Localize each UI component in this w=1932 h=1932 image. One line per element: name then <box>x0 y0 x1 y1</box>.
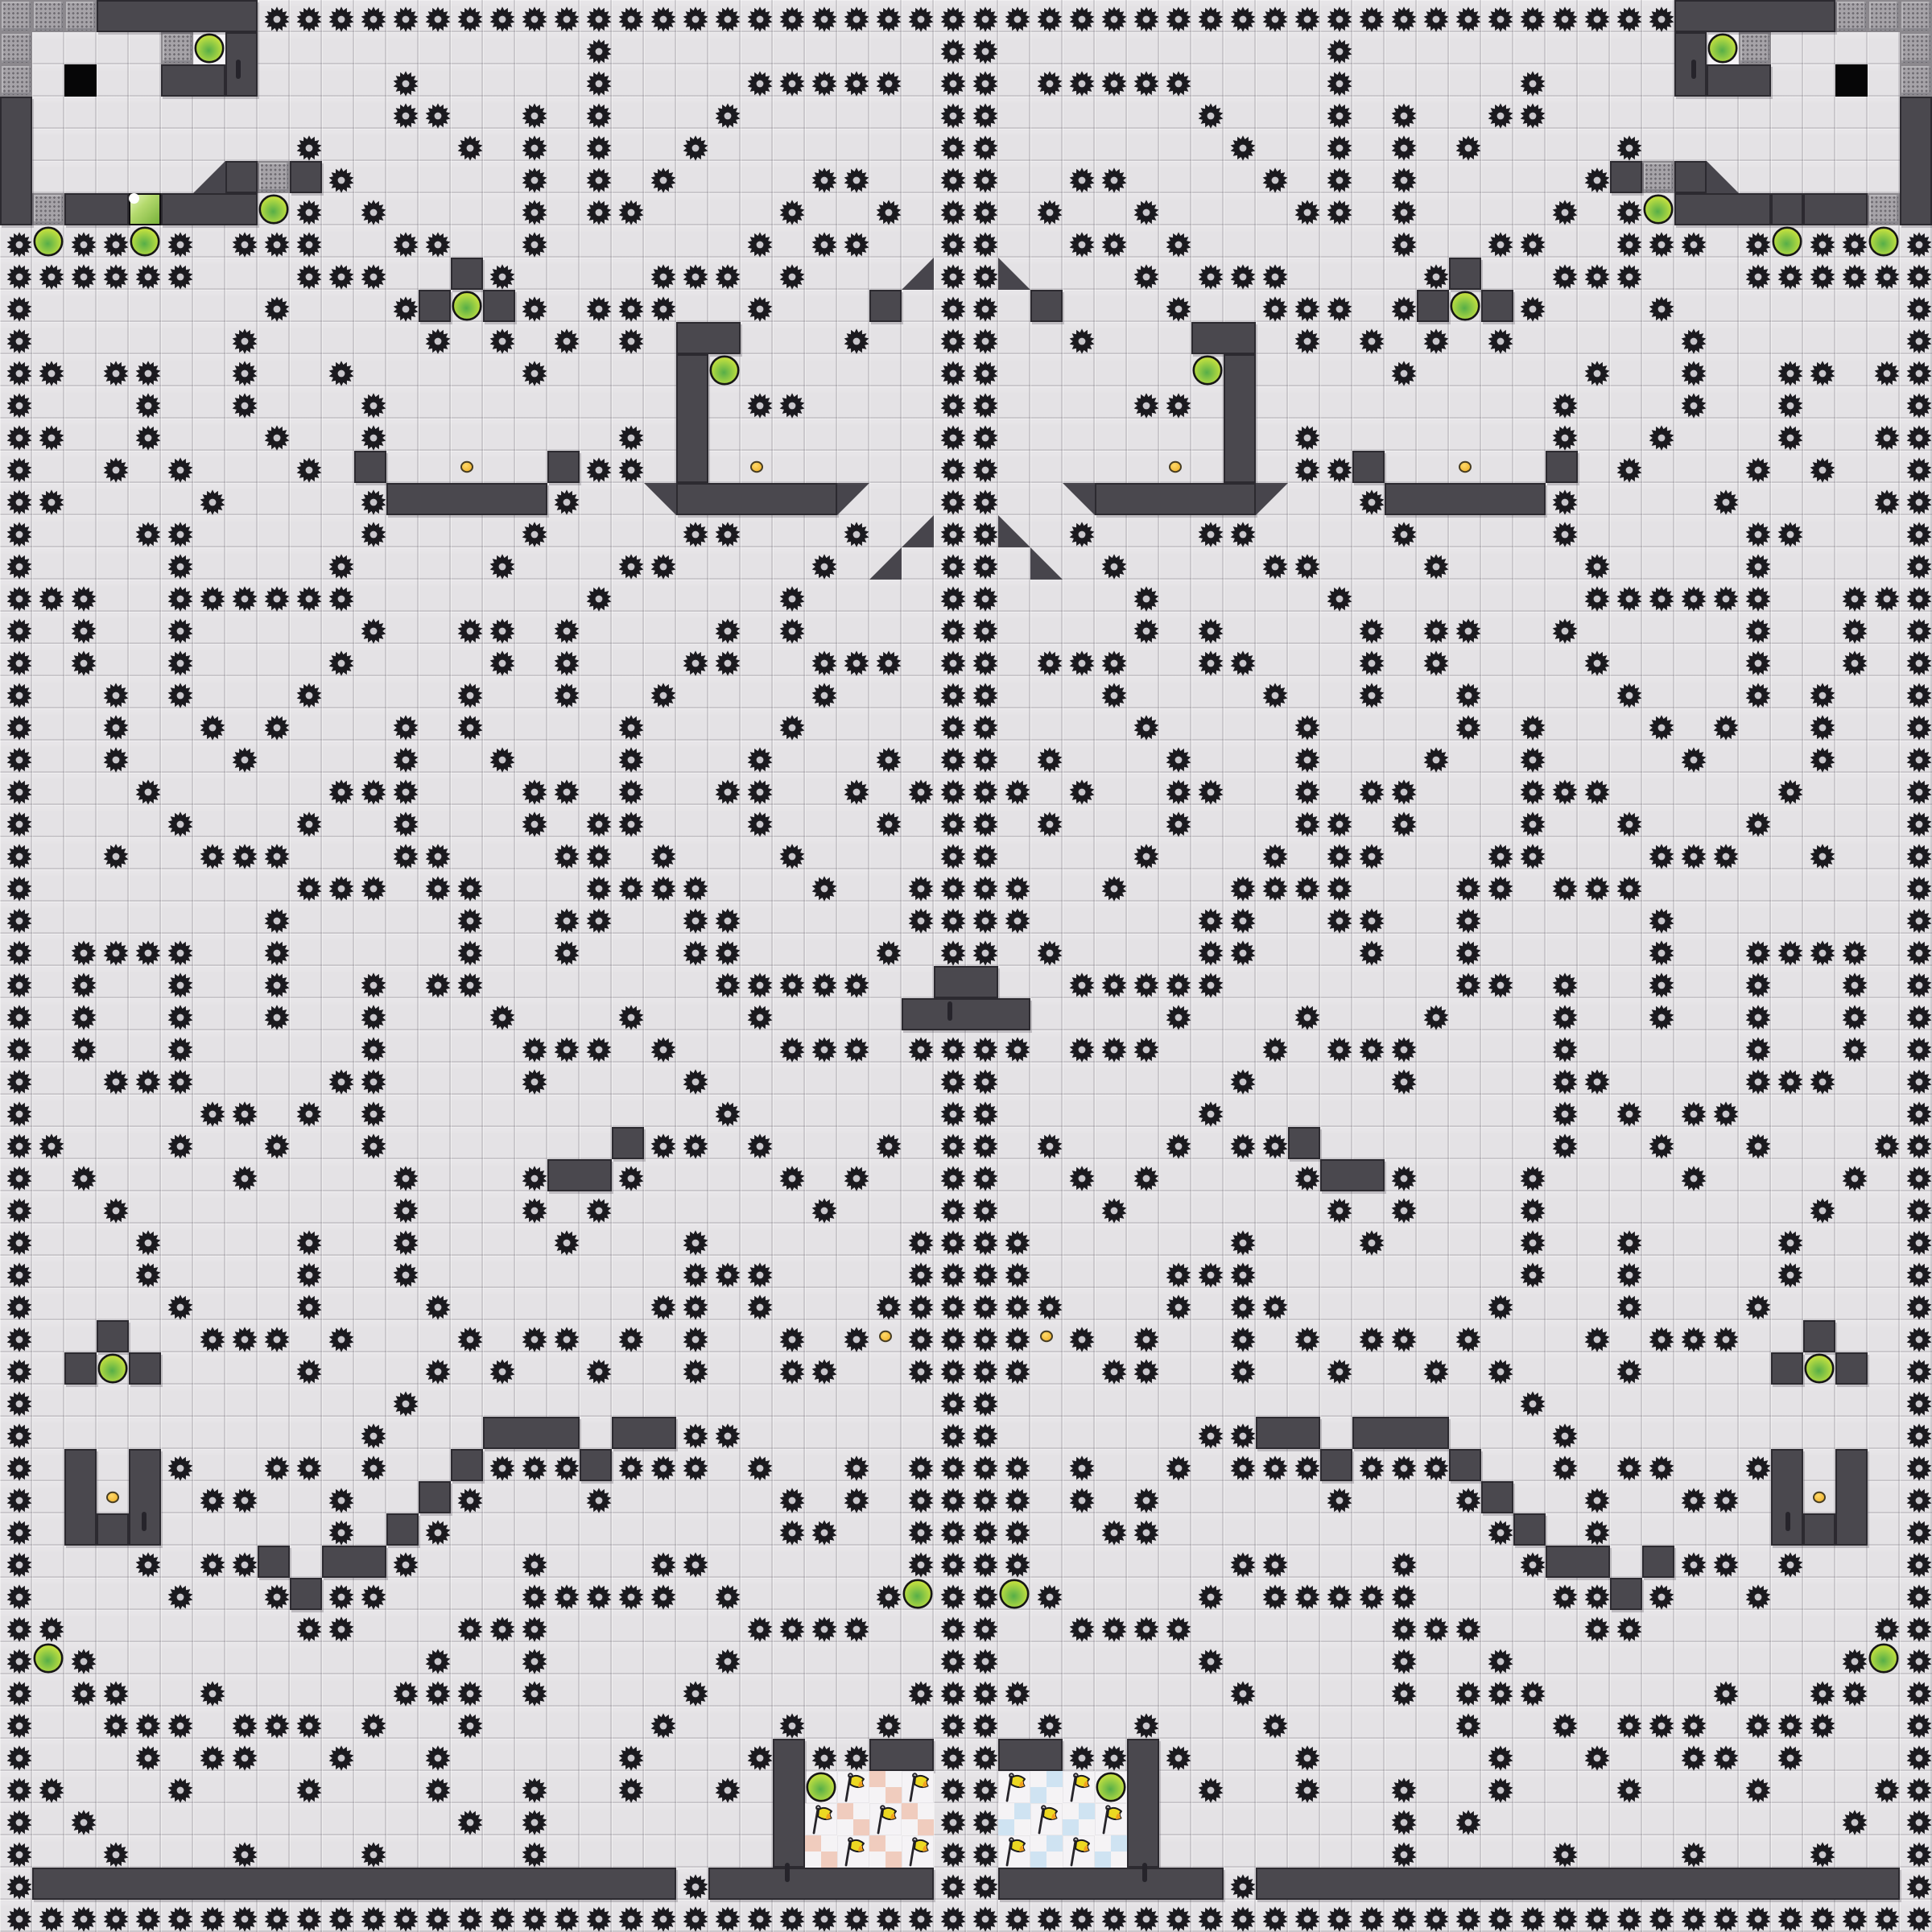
textured-block <box>161 32 193 64</box>
textured-block <box>64 0 97 32</box>
checker-tile <box>869 1835 902 1868</box>
black-square <box>64 64 97 97</box>
wall-block <box>1771 1352 1803 1385</box>
wall-block <box>869 290 902 322</box>
textured-block <box>1739 32 1771 64</box>
flag-tile <box>837 1771 869 1803</box>
textured-block <box>1642 161 1674 193</box>
textured-block <box>1868 0 1900 32</box>
wall-block <box>1674 32 1707 97</box>
textured-block <box>258 161 290 193</box>
wall-block <box>0 97 32 225</box>
flag-tile <box>1063 1835 1095 1868</box>
textured-block <box>0 0 32 32</box>
textured-block <box>0 64 32 97</box>
wall-block <box>1674 193 1771 225</box>
wall-block <box>869 1739 934 1771</box>
flag-tile <box>998 1771 1030 1803</box>
wall-block <box>1674 0 1835 32</box>
wall-block <box>1320 1449 1352 1481</box>
wall-block <box>934 966 998 998</box>
wall-block <box>676 354 708 483</box>
wall-block <box>1191 322 1256 354</box>
wall-block <box>1352 451 1385 483</box>
wall-block <box>1803 193 1868 225</box>
wall-block <box>97 1320 129 1352</box>
checker-tile <box>1063 1803 1095 1835</box>
door-mark <box>1691 60 1696 79</box>
checker-tile <box>1030 1835 1063 1868</box>
wall-block <box>161 64 225 97</box>
wall-block <box>1513 1513 1546 1546</box>
checker-tile <box>1095 1835 1127 1868</box>
wall-block <box>1771 193 1803 225</box>
door-mark <box>1785 1512 1790 1531</box>
wall-block <box>1385 483 1546 515</box>
wall-block <box>1642 1546 1674 1578</box>
wall-block <box>998 1868 1224 1900</box>
checker-tile <box>805 1835 837 1868</box>
flag-tile <box>902 1771 934 1803</box>
flag-tile <box>805 1803 837 1835</box>
wall-block <box>1803 1513 1835 1546</box>
textured-block <box>1900 0 1932 32</box>
wall-block <box>1481 1481 1513 1513</box>
wall-block <box>386 1513 419 1546</box>
wall-block <box>451 1449 483 1481</box>
wall-block <box>1320 1159 1385 1191</box>
checker-tile <box>837 1803 869 1835</box>
door-mark <box>785 1863 790 1882</box>
wall-block <box>290 1578 322 1610</box>
wall-block <box>902 998 1030 1030</box>
wall-block <box>1095 483 1256 515</box>
wall-block <box>580 1449 612 1481</box>
wall-block <box>676 483 837 515</box>
wall-block <box>483 290 515 322</box>
wall-block <box>225 161 258 193</box>
wall-block <box>1835 1449 1868 1546</box>
wall-block <box>129 1449 161 1546</box>
wall-block <box>483 1417 580 1449</box>
door-mark <box>142 1512 147 1531</box>
wall-block <box>1771 1449 1803 1546</box>
white-tile <box>193 32 225 64</box>
wall-block <box>547 451 580 483</box>
wall-block <box>451 258 483 290</box>
wall-block <box>1030 290 1063 322</box>
wall-block <box>1417 290 1449 322</box>
wall-block <box>97 0 258 32</box>
flag-tile <box>1030 1803 1063 1835</box>
flag-tile <box>1095 1803 1127 1835</box>
wall-block <box>773 1739 805 1868</box>
wall-block <box>1449 258 1481 290</box>
wall-block <box>1610 1578 1642 1610</box>
wall-block <box>708 1868 934 1900</box>
wall-block <box>97 1513 129 1546</box>
player-spawn-notch <box>129 193 139 204</box>
wall-block <box>547 1159 612 1191</box>
wall-block <box>1256 1868 1900 1900</box>
checker-tile <box>902 1803 934 1835</box>
door-mark <box>947 1001 952 1021</box>
white-tile <box>805 1771 837 1803</box>
wall-block <box>419 1481 451 1513</box>
wall-block <box>612 1127 644 1159</box>
textured-block <box>1900 64 1932 97</box>
checker-tile <box>998 1803 1030 1835</box>
wall-block <box>1449 1449 1481 1481</box>
wall-block <box>419 290 451 322</box>
wall-block <box>386 483 547 515</box>
black-square <box>1835 64 1868 97</box>
wall-block <box>258 1546 290 1578</box>
flag-tile <box>1063 1771 1095 1803</box>
wall-block <box>322 1546 386 1578</box>
wall-block <box>1546 451 1578 483</box>
wall-block <box>161 193 258 225</box>
textured-block <box>1900 32 1932 64</box>
flag-tile <box>998 1835 1030 1868</box>
wall-block <box>354 451 386 483</box>
wall-block <box>1835 1352 1868 1385</box>
wall-block <box>1224 354 1256 483</box>
door-mark <box>1142 1863 1147 1882</box>
wall-block <box>129 1352 161 1385</box>
flag-tile <box>869 1803 902 1835</box>
wall-block <box>225 32 258 97</box>
checker-tile <box>869 1771 902 1803</box>
wall-block <box>64 1449 97 1546</box>
textured-block <box>1835 0 1868 32</box>
wall-block <box>1803 1320 1835 1352</box>
wall-block <box>1288 1127 1320 1159</box>
flag-tile <box>902 1835 934 1868</box>
wall-block <box>290 161 322 193</box>
textured-block <box>32 0 64 32</box>
textured-block <box>1868 193 1900 225</box>
textured-block <box>0 32 32 64</box>
wall-block <box>64 193 129 225</box>
wall-block <box>1256 1417 1320 1449</box>
wall-block <box>1481 290 1513 322</box>
wall-block <box>1900 97 1932 225</box>
white-tile <box>1707 32 1739 64</box>
wall-block <box>998 1739 1063 1771</box>
wall-block <box>1352 1417 1449 1449</box>
wall-block <box>1127 1739 1159 1868</box>
checker-tile <box>1030 1771 1063 1803</box>
wall-block <box>64 1352 97 1385</box>
wall-block <box>1610 161 1642 193</box>
wall-block <box>1707 64 1771 97</box>
wall-block <box>676 322 741 354</box>
textured-block <box>32 193 64 225</box>
player-spawn <box>129 193 161 225</box>
flag-tile <box>837 1835 869 1868</box>
wall-block <box>612 1417 676 1449</box>
wall-block <box>32 1868 676 1900</box>
white-tile <box>1095 1771 1127 1803</box>
wall-block <box>1546 1546 1610 1578</box>
wall-block <box>1674 161 1707 193</box>
door-mark <box>236 60 241 79</box>
game-board[interactable] <box>0 0 1932 1932</box>
